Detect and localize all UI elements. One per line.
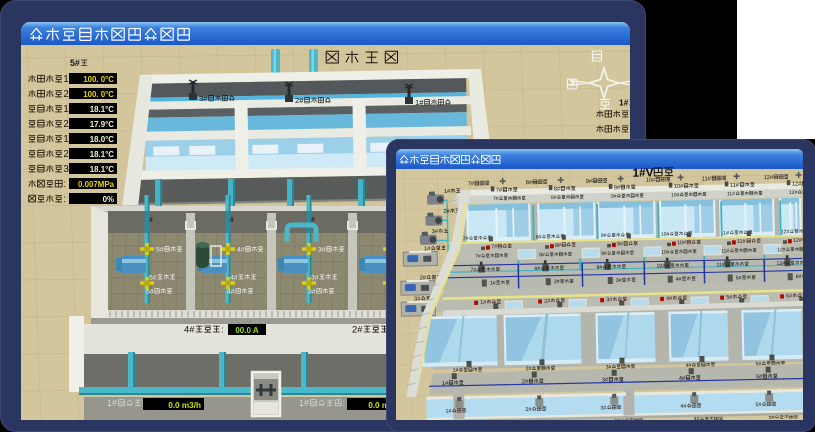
svg-text:100. 0°C: 100. 0°C	[83, 75, 114, 84]
svg-text:5#: 5#	[149, 274, 157, 281]
svg-text:7#: 7#	[496, 188, 503, 194]
svg-text:10#: 10#	[661, 232, 670, 238]
svg-text:1#: 1#	[490, 280, 496, 286]
svg-text:7#: 7#	[463, 236, 469, 242]
svg-text:9#: 9#	[586, 179, 593, 185]
svg-text:1#: 1#	[107, 398, 117, 408]
svg-text:7#: 7#	[491, 244, 497, 250]
svg-text:7#: 7#	[468, 181, 475, 187]
svg-text:9#: 9#	[614, 185, 621, 191]
svg-text:5#: 5#	[156, 246, 164, 253]
svg-text:3#: 3#	[432, 229, 439, 235]
svg-text:12#: 12#	[777, 247, 786, 253]
svg-text:1#: 1#	[480, 300, 486, 306]
svg-text:5#: 5#	[726, 295, 732, 301]
svg-text:8#: 8#	[551, 195, 557, 201]
svg-text:8#: 8#	[536, 234, 542, 240]
svg-text:12#: 12#	[793, 238, 802, 244]
svg-text:10#: 10#	[677, 240, 686, 246]
svg-text:9#: 9#	[596, 265, 602, 271]
svg-text:3#: 3#	[616, 278, 622, 284]
svg-text:18.0°C: 18.0°C	[90, 135, 115, 144]
svg-text:2#: 2#	[295, 96, 304, 105]
svg-text:18.1°C: 18.1°C	[90, 150, 115, 159]
svg-text::: :	[221, 323, 224, 334]
svg-text:5#: 5#	[736, 275, 742, 281]
svg-text:12#: 12#	[789, 190, 798, 196]
svg-text:4#: 4#	[230, 274, 238, 281]
svg-text:6#: 6#	[796, 274, 802, 280]
svg-text:00.0 A: 00.0 A	[235, 326, 258, 335]
svg-text:9#: 9#	[611, 194, 617, 200]
svg-text:2#: 2#	[525, 407, 531, 413]
svg-text:3#: 3#	[199, 94, 208, 103]
svg-text:12#: 12#	[764, 175, 774, 181]
svg-text:18.1°C: 18.1°C	[90, 105, 115, 114]
svg-text:4#: 4#	[680, 404, 686, 410]
svg-text:4#: 4#	[676, 277, 682, 283]
svg-text:3#: 3#	[318, 246, 326, 253]
svg-text:2#: 2#	[352, 323, 363, 334]
svg-text:1#: 1#	[445, 409, 451, 415]
svg-text:10#: 10#	[661, 250, 670, 256]
svg-text:2#: 2#	[544, 298, 550, 304]
svg-text:3#: 3#	[308, 288, 316, 295]
svg-text:8#: 8#	[555, 243, 561, 249]
svg-text:4#: 4#	[679, 376, 686, 382]
svg-text:11#: 11#	[721, 248, 729, 254]
svg-text:4#: 4#	[237, 246, 245, 253]
svg-text:12#: 12#	[776, 261, 785, 267]
svg-text:12#: 12#	[792, 181, 802, 187]
svg-text:17.9°C: 17.9°C	[90, 120, 115, 129]
svg-text:1#: 1#	[619, 98, 629, 108]
svg-text:5#: 5#	[755, 402, 761, 408]
svg-text:8#: 8#	[534, 266, 540, 272]
svg-text:0.007MPa: 0.007MPa	[78, 180, 115, 189]
svg-text:7#: 7#	[470, 267, 476, 273]
svg-text:3#: 3#	[600, 405, 606, 411]
svg-text:18.1°C: 18.1°C	[90, 165, 115, 174]
svg-text:5#: 5#	[146, 288, 154, 295]
svg-text:1#: 1#	[442, 381, 449, 387]
svg-text:11#: 11#	[730, 183, 740, 189]
svg-text:3#: 3#	[311, 274, 319, 281]
svg-text:3#: 3#	[602, 377, 609, 383]
svg-text::: :	[342, 398, 345, 408]
svg-text:5#: 5#	[756, 374, 763, 380]
svg-text:4#: 4#	[227, 288, 235, 295]
svg-text:5#: 5#	[70, 58, 80, 68]
svg-text:3#: 3#	[606, 297, 612, 303]
svg-text:9#: 9#	[601, 233, 607, 239]
svg-text:4#: 4#	[666, 296, 672, 302]
svg-text:10#: 10#	[671, 192, 680, 198]
svg-text:10#: 10#	[656, 263, 665, 269]
svg-text:11#: 11#	[737, 239, 746, 245]
svg-text:9#: 9#	[617, 241, 623, 247]
svg-text:0.0 m3/h: 0.0 m3/h	[168, 401, 201, 410]
svg-text:11#: 11#	[716, 262, 725, 268]
svg-text:12#: 12#	[781, 229, 790, 235]
svg-text:1#: 1#	[453, 368, 459, 374]
svg-text:10#: 10#	[646, 177, 656, 183]
svg-text:4#: 4#	[184, 323, 195, 334]
svg-text:1#: 1#	[299, 398, 309, 408]
svg-text:11#: 11#	[702, 176, 712, 182]
svg-text:2#: 2#	[554, 279, 560, 285]
svg-text:11#: 11#	[727, 191, 735, 197]
svg-text:8#: 8#	[526, 180, 533, 186]
svg-text::: :	[63, 179, 66, 190]
svg-text::: :	[63, 194, 66, 205]
svg-text:8#: 8#	[539, 252, 545, 258]
svg-text:6#: 6#	[786, 293, 792, 299]
svg-text:1#: 1#	[444, 189, 451, 195]
svg-text:2#: 2#	[443, 209, 450, 215]
svg-text:7#: 7#	[493, 196, 499, 202]
svg-text:2#: 2#	[522, 379, 529, 385]
svg-text:9#: 9#	[601, 251, 607, 257]
svg-text:100. 0°C: 100. 0°C	[83, 90, 114, 99]
svg-text:8#: 8#	[554, 186, 561, 192]
svg-text:10#: 10#	[674, 184, 684, 190]
svg-text:0%: 0%	[103, 195, 114, 204]
svg-text:1#: 1#	[415, 98, 424, 107]
svg-text:7#: 7#	[475, 254, 481, 260]
